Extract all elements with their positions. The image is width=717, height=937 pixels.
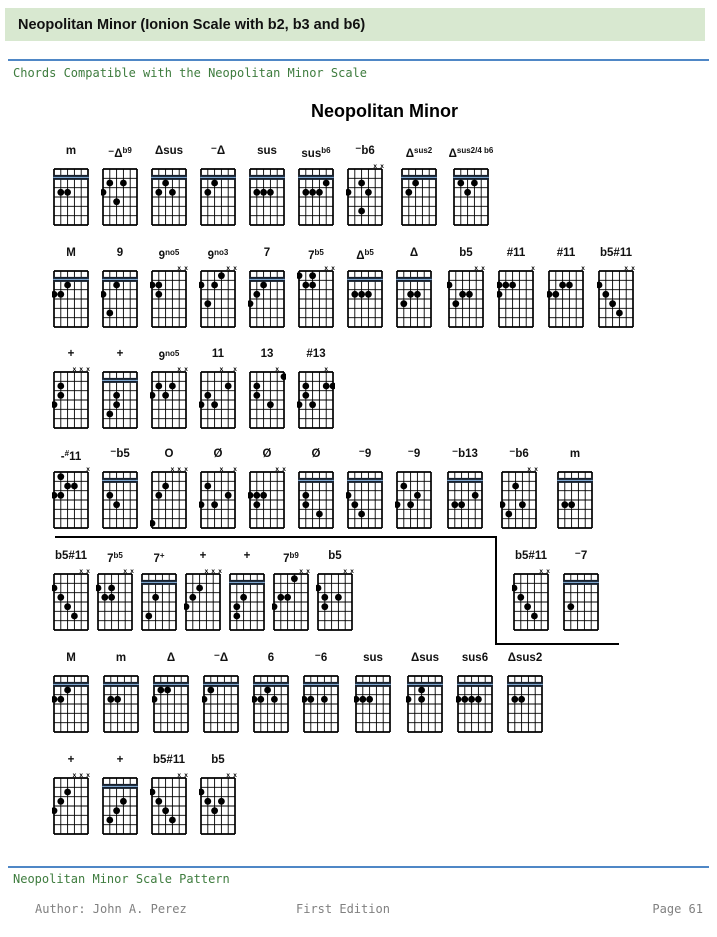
- chord-label: ⁻b6: [335, 142, 395, 160]
- fretboard-grid: x: [52, 466, 90, 532]
- chord-diagram: ⁻b6xx: [346, 163, 384, 229]
- muted-string-x-mark: x: [531, 265, 535, 272]
- muted-string-x-mark: x: [177, 772, 181, 779]
- chord-label: #13: [286, 345, 346, 363]
- muted-string-x-mark: x: [226, 772, 230, 779]
- muted-string-x-mark: x: [233, 466, 237, 473]
- fretboard-grid: xx: [500, 466, 538, 532]
- chord-label: Δsus2: [495, 649, 555, 667]
- fretboard-grid: [346, 466, 384, 532]
- muted-string-x-mark: x: [211, 568, 215, 575]
- chord-diagram: b5#11xx: [597, 265, 635, 331]
- fretboard-grid: [52, 163, 90, 229]
- muted-string-x-mark: x: [343, 568, 347, 575]
- fretboard-grid: [452, 163, 490, 229]
- chord-diagram: 7: [248, 265, 286, 331]
- fretboard-grid: xx: [52, 568, 90, 634]
- chord-label: Δsus2/4 b6: [441, 142, 501, 163]
- chord-diagram: +: [101, 772, 139, 838]
- chord-diagram: +: [228, 568, 266, 634]
- muted-string-x-mark: x: [130, 568, 134, 575]
- chord-diagram: Δ: [395, 265, 433, 331]
- fretboard-grid: xx: [150, 772, 188, 838]
- fretboard-grid: [228, 568, 266, 634]
- chord-diagram: 7b5xx: [297, 265, 335, 331]
- chord-diagram: Øxx: [248, 466, 286, 532]
- chord-diagram: M: [52, 265, 90, 331]
- chord-diagram: ⁻Δ: [202, 670, 240, 736]
- chord-diagram: 9no3xx: [199, 265, 237, 331]
- fretboard-grid: [150, 163, 188, 229]
- chord-diagram: m: [556, 466, 594, 532]
- fretboard-grid: [456, 670, 494, 736]
- chord-diagram: Δsus2/4 b6: [452, 163, 490, 229]
- chord-diagram: ⁻6: [302, 670, 340, 736]
- chord-diagram: 9no5xx: [150, 265, 188, 331]
- muted-string-x-mark: x: [275, 466, 279, 473]
- fretboard-grid: xx: [199, 366, 237, 432]
- chord-diagram: 9: [101, 265, 139, 331]
- muted-string-x-mark: x: [171, 466, 175, 473]
- chord-diagram: b5xx: [199, 772, 237, 838]
- muted-string-x-mark: x: [527, 466, 531, 473]
- chord-diagram: Δ: [152, 670, 190, 736]
- chord-label: b5: [188, 751, 248, 769]
- fretboard-grid: [140, 568, 178, 634]
- fretboard-grid: xx: [447, 265, 485, 331]
- chord-label: b5: [305, 547, 365, 565]
- chord-diagram: 13x: [248, 366, 286, 432]
- fretboard-grid: xx: [199, 466, 237, 532]
- muted-string-x-mark: x: [324, 265, 328, 272]
- muted-string-x-mark: x: [79, 568, 83, 575]
- fretboard-grid: xxx: [150, 466, 188, 532]
- chord-diagram: 9no5xx: [150, 366, 188, 432]
- chord-diagram: ⁻b6xx: [500, 466, 538, 532]
- muted-string-x-mark: x: [220, 366, 224, 373]
- fretboard-grid: xx: [316, 568, 354, 634]
- fretboard-grid: [101, 366, 139, 432]
- muted-string-x-mark: x: [380, 163, 384, 170]
- fretboard-grid: xx: [272, 568, 310, 634]
- muted-string-x-mark: x: [481, 265, 485, 272]
- muted-string-x-mark: x: [86, 466, 90, 473]
- fretboard-grid: xxx: [52, 366, 90, 432]
- fretboard-grid: [248, 163, 286, 229]
- chord-diagram: ⁻9: [395, 466, 433, 532]
- fretboard-grid: xx: [150, 265, 188, 331]
- muted-string-x-mark: x: [624, 265, 628, 272]
- muted-string-x-mark: x: [79, 772, 83, 779]
- muted-string-x-mark: x: [184, 265, 188, 272]
- fretboard-grid: [101, 466, 139, 532]
- muted-string-x-mark: x: [226, 265, 230, 272]
- chord-diagram: 7+: [140, 568, 178, 634]
- muted-string-x-mark: x: [177, 265, 181, 272]
- muted-string-x-mark: x: [539, 568, 543, 575]
- chord-diagram: ⁻Δb9: [101, 163, 139, 229]
- muted-string-x-mark: x: [306, 568, 310, 575]
- chord-label: ⁻7: [551, 547, 611, 565]
- chord-label: sus: [343, 649, 403, 667]
- muted-string-x-mark: x: [233, 772, 237, 779]
- fretboard-grid: [400, 163, 438, 229]
- muted-string-x-mark: x: [86, 568, 90, 575]
- muted-string-x-mark: x: [218, 568, 222, 575]
- fretboard-grid: [101, 265, 139, 331]
- fretboard-grid: [52, 670, 90, 736]
- fretboard-grid: [52, 265, 90, 331]
- chord-diagram: Δsus: [406, 670, 444, 736]
- chord-label: m: [545, 445, 605, 463]
- chord-diagram: b5#11xx: [150, 772, 188, 838]
- muted-string-x-mark: x: [86, 366, 90, 373]
- fretboard-grid: [152, 670, 190, 736]
- fretboard-grid: x: [547, 265, 585, 331]
- fretboard-grid: [102, 670, 140, 736]
- muted-string-x-mark: x: [299, 568, 303, 575]
- fretboard-grid: [248, 265, 286, 331]
- fretboard-grid: xx: [248, 466, 286, 532]
- chord-diagram: -#11x: [52, 466, 90, 532]
- chord-diagram: susb6: [297, 163, 335, 229]
- muted-string-x-mark: x: [184, 466, 188, 473]
- chord-diagram: b5#11xx: [512, 568, 550, 634]
- fretboard-grid: [252, 670, 290, 736]
- bottom-divider-rule: [8, 866, 709, 868]
- muted-string-x-mark: x: [373, 163, 377, 170]
- chord-diagram: sus: [248, 163, 286, 229]
- chord-diagram: b5xx: [316, 568, 354, 634]
- chord-diagram: #11x: [497, 265, 535, 331]
- footer-author: Author: John A. Perez: [35, 902, 187, 916]
- chord-diagram: +: [101, 366, 139, 432]
- fretboard-grid: [354, 670, 392, 736]
- fretboard-grid: xx: [346, 163, 384, 229]
- chord-label: Δ: [384, 244, 444, 262]
- muted-string-x-mark: x: [233, 366, 237, 373]
- fretboard-grid: xx: [96, 568, 134, 634]
- footer-edition: First Edition: [296, 902, 390, 916]
- chord-diagram: ⁻7: [562, 568, 600, 634]
- chord-chart: m⁻Δb9Δsus⁻Δsussusb6⁻b6xxΔsus2Δsus2/4 b6M…: [0, 0, 717, 937]
- muted-string-x-mark: x: [534, 466, 538, 473]
- fretboard-grid: [395, 265, 433, 331]
- chord-diagram: ⁻b5: [101, 466, 139, 532]
- fretboard-grid: [202, 670, 240, 736]
- muted-string-x-mark: x: [184, 366, 188, 373]
- chord-diagram: 7b5xx: [96, 568, 134, 634]
- group-bracket-line: [495, 536, 497, 645]
- muted-string-x-mark: x: [324, 366, 328, 373]
- muted-string-x-mark: x: [86, 772, 90, 779]
- chord-diagram: +xxx: [52, 366, 90, 432]
- fretboard-grid: [297, 163, 335, 229]
- chord-diagram: Δsus2: [506, 670, 544, 736]
- chord-label: ⁻b13: [435, 445, 495, 463]
- fretboard-grid: xxx: [184, 568, 222, 634]
- fretboard-grid: [446, 466, 484, 532]
- chord-diagram: #11x: [547, 265, 585, 331]
- muted-string-x-mark: x: [184, 772, 188, 779]
- fretboard-grid: [101, 163, 139, 229]
- chord-diagram: #13x: [297, 366, 335, 432]
- muted-string-x-mark: x: [282, 466, 286, 473]
- chord-diagram: sus: [354, 670, 392, 736]
- group-bracket-line: [55, 536, 497, 538]
- fretboard-grid: xx: [199, 265, 237, 331]
- chord-diagram: Øxx: [199, 466, 237, 532]
- fretboard-grid: [199, 163, 237, 229]
- muted-string-x-mark: x: [631, 265, 635, 272]
- muted-string-x-mark: x: [220, 466, 224, 473]
- chord-label: ⁻b6: [489, 445, 549, 463]
- fretboard-grid: xxx: [52, 772, 90, 838]
- chord-diagram: sus6: [456, 670, 494, 736]
- chord-diagram: Δsus: [150, 163, 188, 229]
- bottom-section-heading: Neopolitan Minor Scale Pattern: [13, 872, 230, 886]
- chord-diagram: Ø: [297, 466, 335, 532]
- muted-string-x-mark: x: [350, 568, 354, 575]
- chord-diagram: M: [52, 670, 90, 736]
- chord-diagram: 7b9xx: [272, 568, 310, 634]
- chord-diagram: b5#11xx: [52, 568, 90, 634]
- fretboard-grid: xx: [199, 772, 237, 838]
- chord-diagram: Δsus2: [400, 163, 438, 229]
- muted-string-x-mark: x: [275, 366, 279, 373]
- muted-string-x-mark: x: [205, 568, 209, 575]
- chord-diagram: b5xx: [447, 265, 485, 331]
- chord-diagram: +xxx: [184, 568, 222, 634]
- chord-diagram: Δb5: [346, 265, 384, 331]
- fretboard-grid: [562, 568, 600, 634]
- fretboard-grid: [346, 265, 384, 331]
- fretboard-grid: [297, 466, 335, 532]
- fretboard-grid: x: [497, 265, 535, 331]
- muted-string-x-mark: x: [331, 265, 335, 272]
- muted-string-x-mark: x: [474, 265, 478, 272]
- fretboard-grid: [556, 466, 594, 532]
- group-bracket-line: [495, 643, 619, 645]
- fretboard-grid: x: [297, 366, 335, 432]
- fretboard-grid: [395, 466, 433, 532]
- fretboard-grid: [506, 670, 544, 736]
- fretboard-grid: xx: [297, 265, 335, 331]
- chord-diagram: m: [52, 163, 90, 229]
- chord-label: b5#11: [586, 244, 646, 262]
- chord-diagram: 6: [252, 670, 290, 736]
- chord-diagram: 11xx: [199, 366, 237, 432]
- chord-diagram: Oxxx: [150, 466, 188, 532]
- muted-string-x-mark: x: [233, 265, 237, 272]
- muted-string-x-mark: x: [79, 366, 83, 373]
- fretboard-grid: xx: [512, 568, 550, 634]
- muted-string-x-mark: x: [177, 466, 181, 473]
- fretboard-grid: xx: [150, 366, 188, 432]
- chord-diagram: ⁻b13: [446, 466, 484, 532]
- muted-string-x-mark: x: [177, 366, 181, 373]
- fretboard-grid: [406, 670, 444, 736]
- fretboard-grid: x: [248, 366, 286, 432]
- muted-string-x-mark: x: [581, 265, 585, 272]
- muted-string-x-mark: x: [73, 366, 77, 373]
- muted-string-x-mark: x: [546, 568, 550, 575]
- document-page: Neopolitan Minor (Ionion Scale with b2, …: [0, 0, 717, 937]
- fretboard-grid: [302, 670, 340, 736]
- chord-diagram: m: [102, 670, 140, 736]
- muted-string-x-mark: x: [73, 772, 77, 779]
- fretboard-grid: xx: [597, 265, 635, 331]
- fretboard-grid: [101, 772, 139, 838]
- chord-diagram: ⁻Δ: [199, 163, 237, 229]
- chord-diagram: ⁻9: [346, 466, 384, 532]
- chord-diagram: +xxx: [52, 772, 90, 838]
- chord-label: Δsus2: [389, 142, 449, 163]
- chord-label: ⁻6: [291, 649, 351, 667]
- muted-string-x-mark: x: [123, 568, 127, 575]
- footer-page-number: Page 61: [652, 902, 703, 916]
